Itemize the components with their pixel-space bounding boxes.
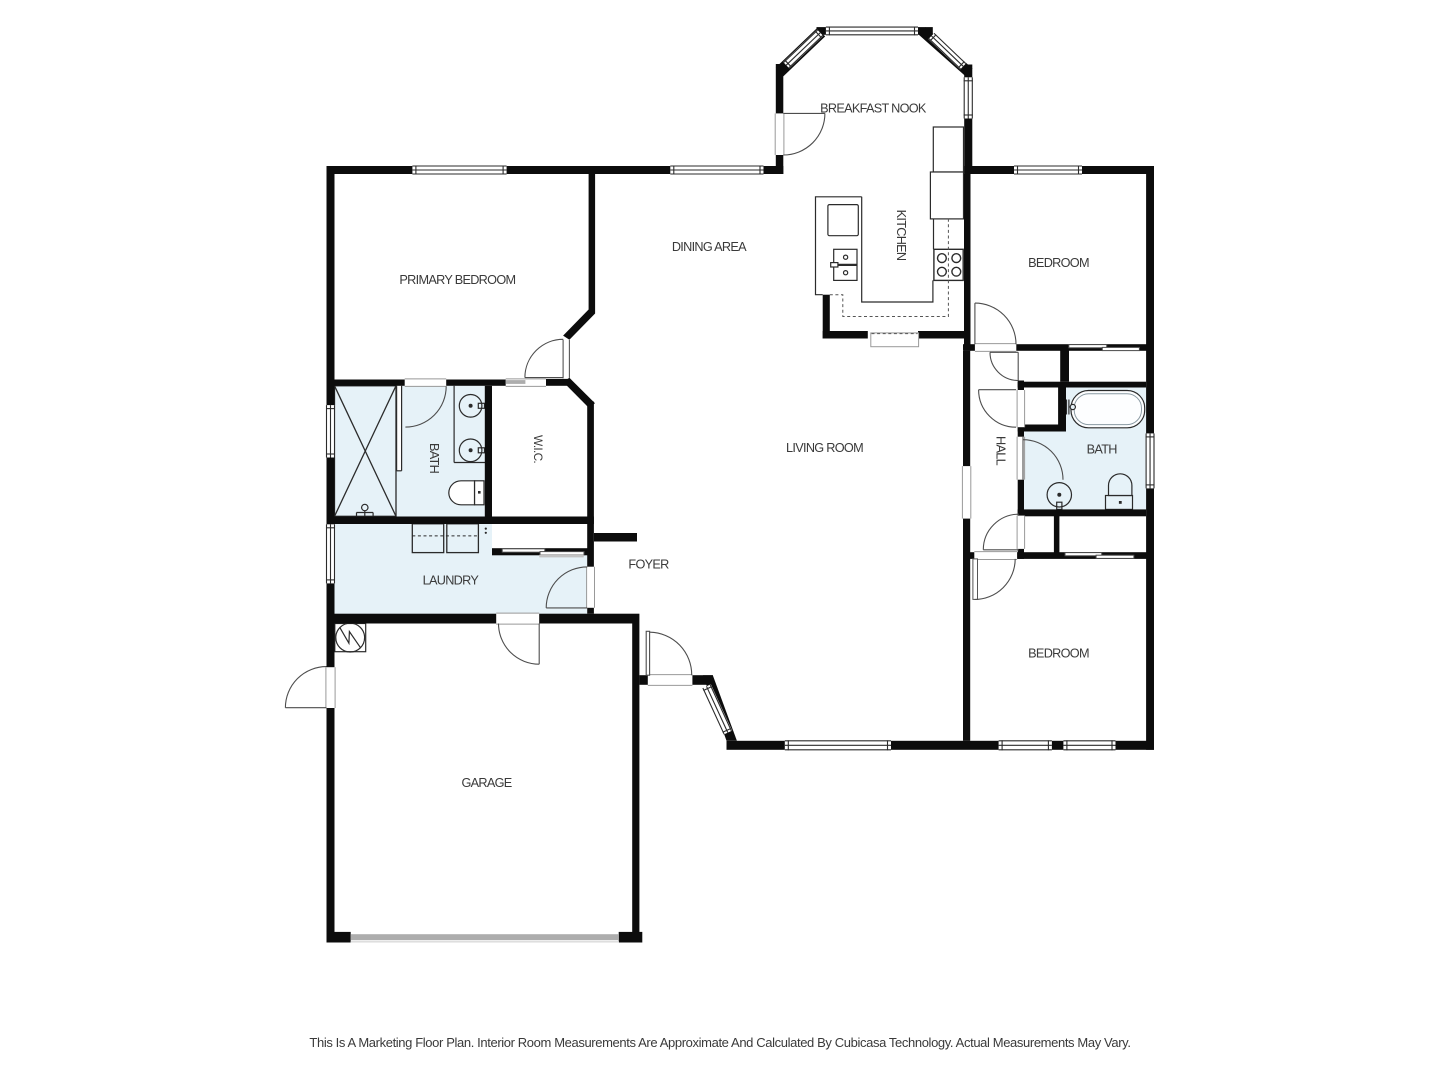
svg-text:KITCHEN: KITCHEN [894,210,908,261]
svg-text:LAUNDRY: LAUNDRY [423,574,480,588]
svg-text:BREAKFAST NOOK: BREAKFAST NOOK [820,102,927,116]
svg-text:BEDROOM: BEDROOM [1028,647,1089,661]
svg-text:GARAGE: GARAGE [461,776,511,790]
svg-text:W.I.C.: W.I.C. [531,435,545,463]
svg-text:This Is A Marketing Floor Plan: This Is A Marketing Floor Plan. Interior… [309,1035,1130,1050]
svg-text:BEDROOM: BEDROOM [1028,256,1089,270]
svg-text:BATH: BATH [427,443,441,474]
svg-text:LIVING ROOM: LIVING ROOM [786,441,863,455]
svg-text:HALL: HALL [994,436,1008,466]
svg-text:PRIMARY BEDROOM: PRIMARY BEDROOM [399,273,515,287]
svg-text:FOYER: FOYER [628,557,669,571]
svg-text:BATH: BATH [1087,442,1118,456]
svg-text:DINING AREA: DINING AREA [672,240,747,254]
